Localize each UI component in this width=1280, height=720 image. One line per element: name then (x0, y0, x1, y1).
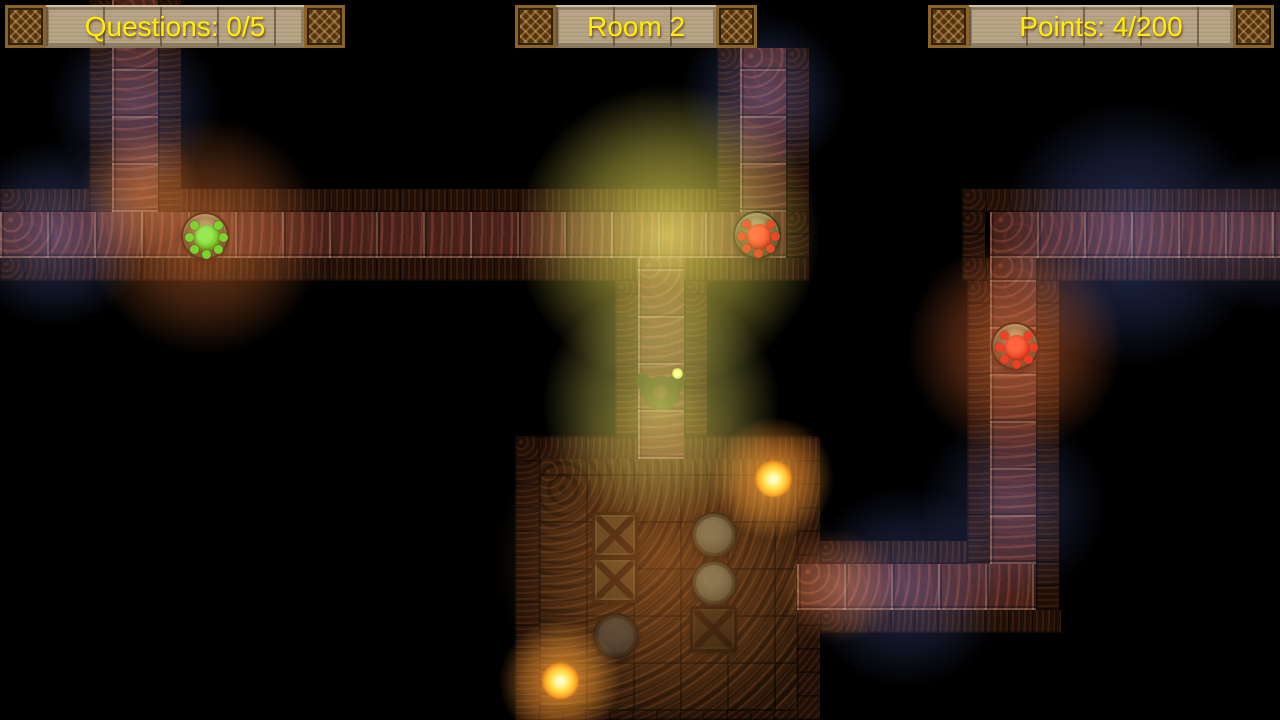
button-stud (1029, 343, 1038, 352)
button-stud (1012, 360, 1021, 369)
torch-glint (672, 368, 683, 379)
hud-questions-panel: Questions: 0/5 (46, 5, 304, 48)
button-stud (754, 249, 763, 258)
button-stud (1024, 331, 1033, 340)
wall-segment (820, 610, 1061, 633)
pressure-button-green (181, 212, 229, 260)
crate-dark (690, 606, 737, 652)
button-stud (219, 233, 228, 242)
corridor-floor (740, 48, 786, 212)
button-stud (190, 245, 199, 254)
player-body (642, 376, 680, 410)
hud-end-cap (1233, 5, 1274, 48)
barrel (691, 560, 737, 606)
button-stud (202, 250, 211, 259)
hud-questions-label: Questions: 0/5 (85, 13, 266, 41)
wall-segment (962, 189, 1280, 212)
button-stud (766, 244, 775, 253)
hud-end-cap (5, 5, 46, 48)
button-stud (1024, 355, 1033, 364)
barrel-dark (593, 613, 639, 659)
button-stud (214, 221, 223, 230)
hud-end-cap (515, 5, 556, 48)
pressure-button-red (733, 211, 781, 259)
wall-segment (0, 258, 809, 281)
button-stud (995, 343, 1004, 352)
wall-segment (962, 212, 985, 258)
player-character (634, 366, 688, 416)
button-stud (766, 220, 775, 229)
pressure-button-red (991, 322, 1039, 370)
corridor-floor (0, 212, 786, 258)
hud-points-panel: Points: 4/200 (969, 5, 1233, 48)
wall-segment (717, 48, 740, 212)
button-stud (190, 221, 199, 230)
corridor-floor (797, 564, 1036, 610)
button-stud (742, 244, 751, 253)
corridor-floor (990, 258, 1036, 564)
crate (592, 557, 638, 603)
button-stud (1000, 331, 1009, 340)
hud-points: Points: 4/200 (928, 5, 1274, 48)
hud-room: Room 2 (515, 5, 757, 48)
hud-end-cap (304, 5, 345, 48)
fire-particle (542, 662, 579, 699)
corridor-floor (990, 212, 1280, 258)
game-viewport[interactable]: Questions: 0/5 Room 2 Points: 4/200 (0, 0, 1280, 720)
wall-segment (786, 48, 809, 212)
button-stud (1000, 355, 1009, 364)
wall-segment (1036, 281, 1059, 633)
button-stud (737, 232, 746, 241)
hud-end-cap (928, 5, 969, 48)
button-stud (771, 232, 780, 241)
button-stud (214, 245, 223, 254)
barrel (691, 512, 737, 558)
button-stud (185, 233, 194, 242)
hud-end-cap (716, 5, 757, 48)
hud-room-label: Room 2 (587, 13, 685, 41)
corridor-floor (638, 258, 684, 459)
hud-questions: Questions: 0/5 (5, 5, 345, 48)
button-stud (742, 220, 751, 229)
crate (592, 512, 638, 558)
wall-segment (786, 212, 809, 258)
wall-segment (820, 541, 967, 564)
fire-particle (755, 460, 792, 497)
hud-room-panel: Room 2 (556, 5, 716, 48)
hud-points-label: Points: 4/200 (1019, 13, 1182, 41)
